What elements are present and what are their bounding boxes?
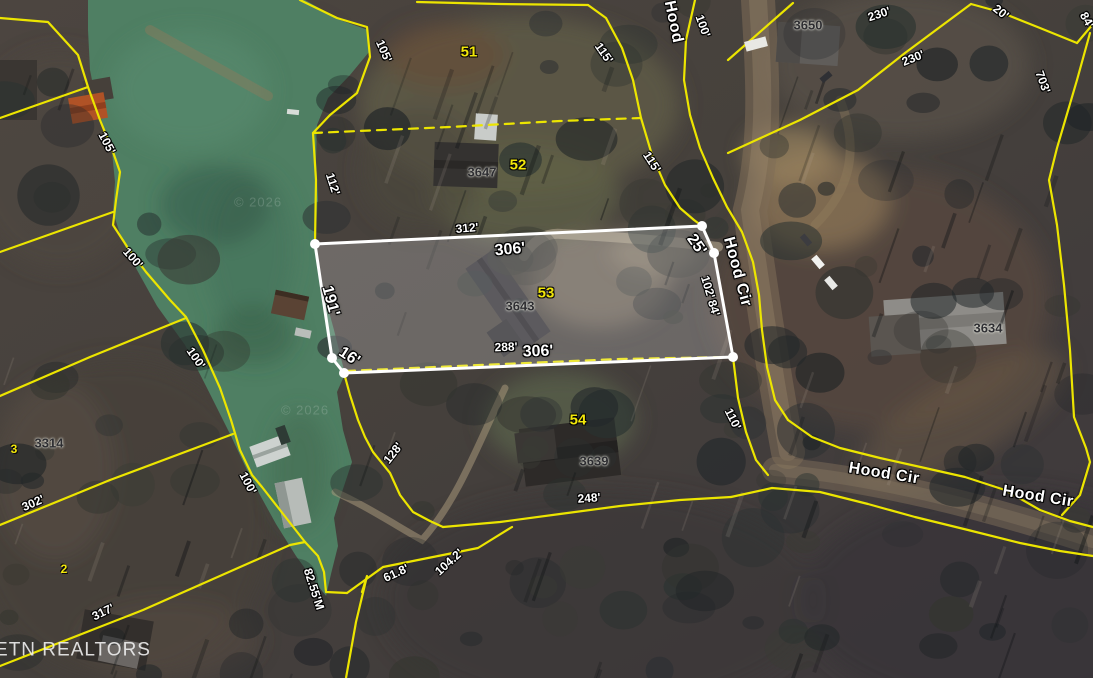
dimension-label: 110' xyxy=(723,406,744,431)
copyright-watermark: © 2026 xyxy=(281,404,329,417)
dimension-label: 128' xyxy=(381,440,405,465)
road-name-label: Hood Cir xyxy=(847,461,920,488)
dimension-label: 84' xyxy=(706,298,722,317)
house-number-label: 3639 xyxy=(580,455,609,468)
road-name-label: Hood xyxy=(661,0,686,45)
satellite-map-view[interactable]: 105'105'112'100'100'100'115'115'100'230'… xyxy=(0,0,1093,678)
dimension-label: 105' xyxy=(96,130,117,156)
dimension-label: 20' xyxy=(991,2,1011,21)
house-number-label: 3650 xyxy=(794,19,823,32)
dimension-label: 306' xyxy=(494,241,526,260)
house-number-label: 3643 xyxy=(506,300,535,313)
dimension-label: 105' xyxy=(374,38,394,64)
dimension-label: 306' xyxy=(522,343,553,360)
dimension-label: 302' xyxy=(20,493,46,513)
copyright-watermark: © 2026 xyxy=(234,196,282,209)
house-number-label: 3634 xyxy=(974,322,1003,335)
dimension-label: 312' xyxy=(455,221,479,235)
road-name-label: Hood Cir xyxy=(1001,484,1074,511)
dimension-label: 100' xyxy=(185,345,208,371)
dimension-label: 288' xyxy=(494,341,517,354)
house-number-label: 3647 xyxy=(468,166,497,179)
dimension-label: 703' xyxy=(1033,69,1052,95)
lot-number-label: 51 xyxy=(461,45,478,60)
dimension-label: 100' xyxy=(121,245,145,270)
lot-number-label: 53 xyxy=(538,286,555,301)
dimension-label: 61.8' xyxy=(382,562,411,584)
lot-number-label: 2 xyxy=(61,563,68,575)
dimension-label: 230' xyxy=(866,5,891,23)
dimension-label: 248' xyxy=(577,491,601,505)
road-name-label: Hood Cir xyxy=(720,235,754,308)
house-number-label: 3314 xyxy=(35,437,64,450)
lot-number-label: 54 xyxy=(570,413,587,428)
dimension-label: 230' xyxy=(900,48,926,68)
dimension-label: 112' xyxy=(324,172,342,197)
dimension-label: 84' xyxy=(1078,10,1093,30)
dimension-label: 16' xyxy=(336,344,363,369)
dimension-label: 100' xyxy=(693,13,712,39)
dimension-label: 115' xyxy=(641,149,663,174)
dimension-label: 104.2' xyxy=(433,547,465,578)
dimension-label: 115' xyxy=(593,40,616,65)
dimension-label: 191' xyxy=(318,284,341,318)
dimension-label: 102' xyxy=(699,274,717,299)
lot-number-label: 52 xyxy=(510,158,527,173)
dimension-label: 25' xyxy=(683,232,709,259)
map-annotation-labels: 105'105'112'100'100'100'115'115'100'230'… xyxy=(0,0,1093,678)
realtor-watermark: ETN REALTORS xyxy=(0,641,151,660)
dimension-label: 100' xyxy=(237,470,258,496)
lot-number-label: 3 xyxy=(11,443,18,455)
dimension-label: 82.55'M xyxy=(302,567,327,611)
dimension-label: 317' xyxy=(90,602,116,623)
